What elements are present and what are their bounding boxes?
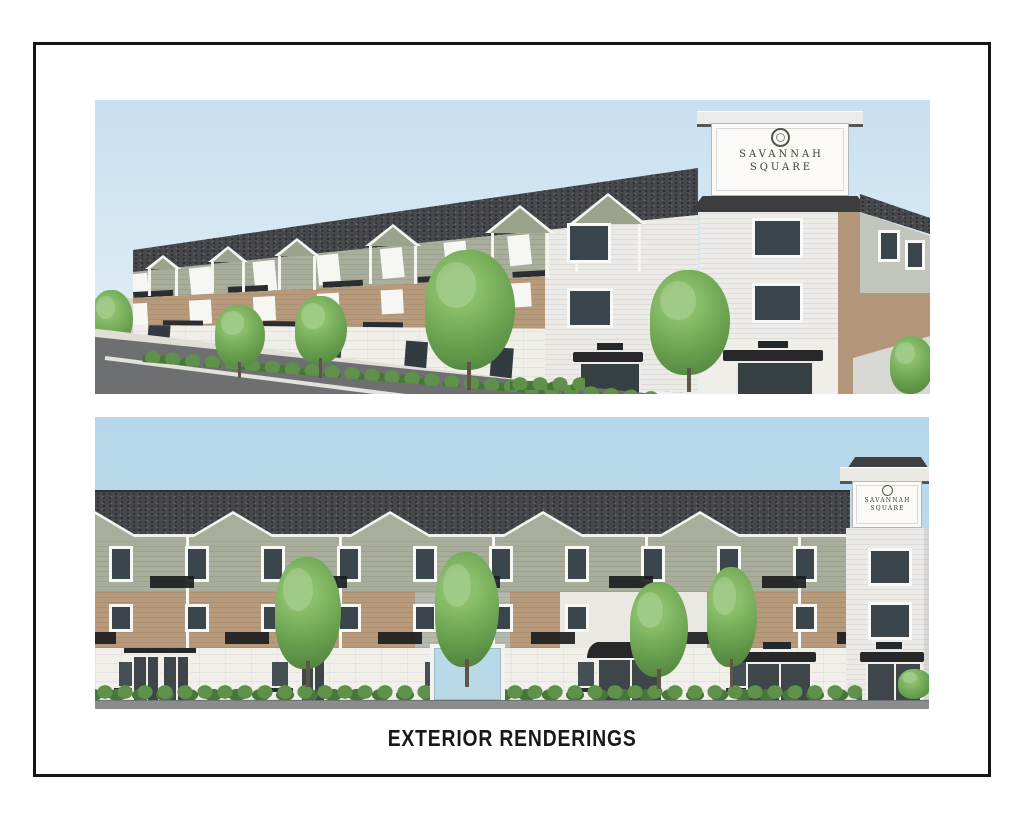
rendering-perspective: SAVANNAH SQUARE	[95, 100, 930, 394]
tree-trunk	[467, 362, 471, 390]
caption: EXTERIOR RENDERINGS	[33, 725, 991, 752]
sign-text-line2: SQUARE	[853, 505, 921, 513]
sign-seal-icon	[771, 128, 790, 147]
porch-column	[175, 269, 178, 296]
gable-dormer	[485, 205, 555, 233]
porch-column	[242, 262, 245, 292]
gable-inner	[490, 208, 550, 233]
rendering-elevation: SAVANNAH SQUARE	[95, 417, 929, 709]
window	[752, 218, 803, 258]
entry-plaque	[758, 341, 788, 348]
gable-trim	[499, 511, 587, 537]
gable-inner	[95, 514, 134, 537]
entry-cornice	[124, 648, 196, 653]
gable-dormer	[569, 193, 647, 224]
gable-inner	[504, 514, 582, 537]
hedge-row	[505, 681, 862, 701]
entry-door	[736, 361, 814, 394]
porch-column	[414, 246, 417, 284]
window	[752, 283, 803, 323]
gable-inner	[213, 249, 243, 262]
sign-text-line1: SAVANNAH	[712, 148, 848, 161]
sign-text-line2: SQUARE	[712, 161, 848, 174]
gable-trim	[365, 224, 421, 246]
tree-trunk	[306, 661, 310, 687]
gable-dormer	[365, 224, 421, 246]
entry-plaque	[763, 642, 791, 649]
gable-inner	[574, 196, 642, 224]
porch-column	[211, 262, 214, 292]
tower-sign: SAVANNAH SQUARE	[711, 123, 849, 196]
window	[878, 230, 900, 262]
sign-text-line1: SAVANNAH	[853, 497, 921, 505]
hedge-row	[95, 681, 430, 701]
window	[868, 548, 912, 586]
porch-column	[278, 256, 281, 290]
sign-seal-icon	[882, 485, 893, 496]
gable-dormer	[346, 511, 434, 537]
window	[905, 240, 925, 270]
tower-roof-flare	[690, 196, 870, 212]
tree-trunk	[687, 368, 691, 392]
window	[567, 223, 611, 263]
caption-text: EXTERIOR RENDERINGS	[388, 725, 637, 752]
porch-column	[546, 233, 549, 277]
gable-trim	[274, 238, 320, 256]
bush	[890, 336, 930, 394]
gable-dormer	[656, 511, 744, 537]
gable-dormer	[274, 238, 320, 256]
gable-trim	[656, 511, 744, 537]
door-awning	[723, 350, 823, 361]
window	[567, 288, 613, 328]
gable-inner	[351, 514, 429, 537]
window	[868, 602, 912, 640]
street	[95, 700, 929, 709]
gable-inner	[279, 241, 315, 256]
porch-column	[369, 246, 372, 284]
gable-trim	[145, 255, 181, 269]
gable-trim	[569, 193, 647, 224]
entry-plaque	[597, 343, 623, 350]
gable-trim	[485, 205, 555, 233]
tree-trunk	[730, 659, 733, 687]
gable-dormer	[208, 246, 248, 262]
gable-trim	[208, 246, 248, 262]
gable-dormer	[499, 511, 587, 537]
gable-inner	[661, 514, 739, 537]
porch-column	[313, 256, 316, 290]
gable-inner	[150, 258, 176, 269]
gable-dormer	[145, 255, 181, 269]
gable-inner	[194, 514, 272, 537]
tree-trunk	[657, 669, 661, 689]
hedge-row	[510, 373, 585, 390]
gable-dormer	[95, 511, 139, 537]
door-awning	[738, 652, 816, 662]
tree-trunk	[238, 362, 241, 378]
gable-dormer	[189, 511, 277, 537]
door-awning	[860, 652, 924, 662]
tower-sign: SAVANNAH SQUARE	[852, 481, 922, 528]
gable-trim	[95, 511, 139, 537]
entry-plaque	[876, 642, 902, 649]
porch-column	[148, 269, 151, 296]
tree-trunk	[319, 358, 322, 378]
porch-column	[638, 224, 641, 272]
bush	[898, 669, 929, 699]
gable-trim	[189, 511, 277, 537]
door-awning	[573, 352, 643, 362]
gable-inner	[370, 227, 416, 246]
tree-trunk	[465, 659, 469, 687]
gable-trim	[346, 511, 434, 537]
